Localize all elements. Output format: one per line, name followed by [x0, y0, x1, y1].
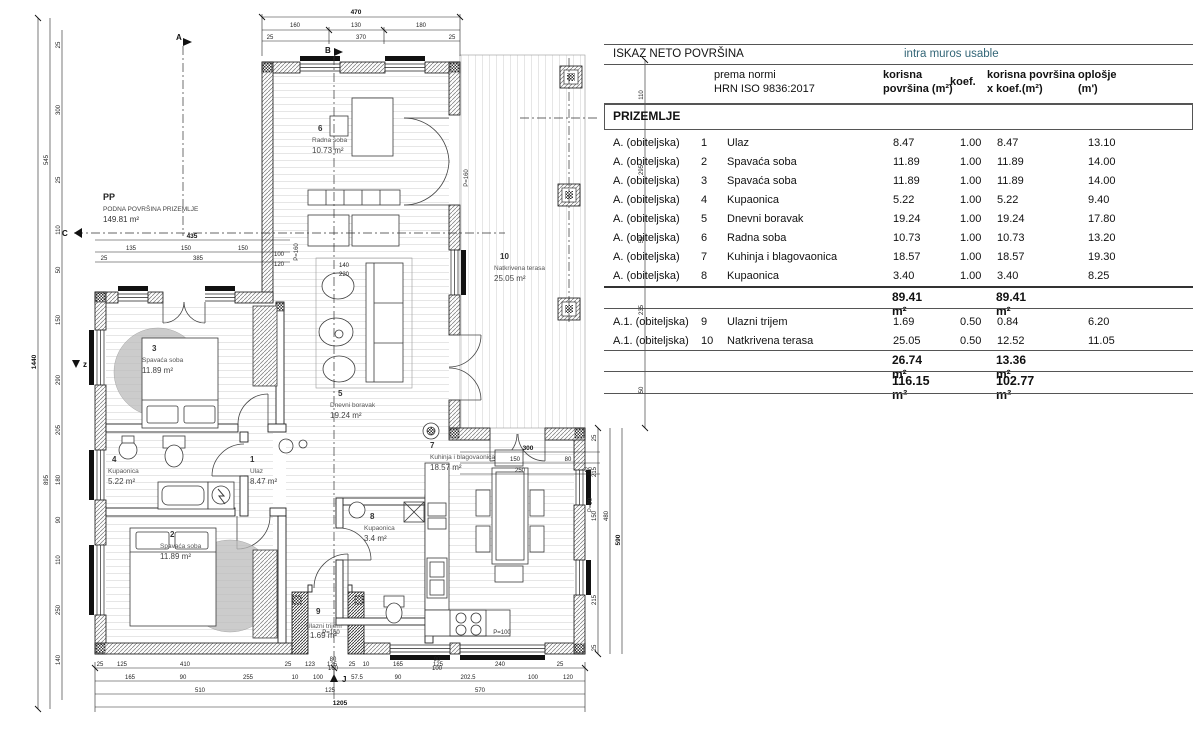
svg-text:125: 125 [325, 688, 336, 694]
table-subtitle: intra muros usable [904, 48, 999, 60]
svg-text:25: 25 [56, 176, 62, 183]
row-category: A. (obiteljska) [613, 270, 701, 282]
svg-text:120: 120 [274, 262, 285, 268]
svg-text:410: 410 [180, 662, 191, 668]
svg-text:150: 150 [56, 314, 62, 325]
row-oplosje: 8.25 [1088, 270, 1193, 282]
svg-text:205: 205 [56, 424, 62, 435]
table-row: A.1. (obiteljska)9Ulazni trijem1.690.500… [604, 312, 1193, 331]
row-number: 6 [701, 232, 727, 244]
room-6-area: 10.73 m² [312, 146, 344, 155]
row-area: 19.24 [893, 213, 960, 225]
row-name: Spavaća soba [727, 175, 893, 187]
floorplan-sheet: A B C z J PP PODNA POVRŠINA PRIZEMLJE 14… [0, 0, 1200, 734]
col-header-area-1: korisna [883, 69, 922, 81]
dim: 470 [351, 9, 362, 16]
sofa [366, 263, 403, 382]
chair [530, 490, 544, 516]
svg-text:100: 100 [432, 666, 443, 672]
norm-line-1: prema normi [714, 69, 776, 81]
row-name: Kupaonica [727, 270, 893, 282]
svg-text:240: 240 [495, 662, 506, 668]
row-areakoef: 8.47 [997, 137, 1088, 149]
row-number: 1 [701, 137, 727, 149]
table-row: A. (obiteljska)3Spavaća soba11.891.0011.… [604, 171, 1193, 190]
svg-text:290: 290 [56, 374, 62, 385]
row-area: 5.22 [893, 194, 960, 206]
row-number: 4 [701, 194, 727, 206]
room-2-number: 2 [170, 530, 175, 539]
row-category: A. (obiteljska) [613, 232, 701, 244]
room-10-name: Natkrivena terasa [494, 265, 545, 272]
axis-marker-z: z [83, 360, 87, 369]
row-oplosje: 13.10 [1088, 137, 1193, 149]
total-area: 116.15 m² [892, 374, 930, 402]
room-6-number: 6 [318, 124, 323, 133]
room-9-number: 9 [316, 607, 321, 616]
row-area: 25.05 [893, 335, 960, 347]
svg-text:123: 123 [305, 662, 316, 668]
table-row: A. (obiteljska)7Kuhinja i blagovaonica18… [604, 247, 1193, 266]
row-oplosje: 11.05 [1088, 335, 1193, 347]
row-number: 8 [701, 270, 727, 282]
wardrobe [253, 550, 277, 638]
row-name: Dnevni boravak [727, 213, 893, 225]
axis-marker-b: B [325, 46, 331, 55]
rule [604, 44, 1193, 45]
row-name: Kupaonica [727, 194, 893, 206]
section-header: PRIZEMLJE [604, 104, 1193, 130]
svg-text:57.5: 57.5 [351, 675, 363, 681]
chair [476, 490, 490, 516]
parapet-label: P=160 [464, 169, 470, 187]
row-areakoef: 10.73 [997, 232, 1088, 244]
row-number: 9 [701, 316, 727, 328]
rule [604, 308, 1193, 309]
row-oplosje: 13.20 [1088, 232, 1193, 244]
row-koef: 0.50 [960, 335, 997, 347]
room-3-number: 3 [152, 344, 157, 353]
table-row: A. (obiteljska)5Dnevni boravak19.241.001… [604, 209, 1193, 228]
svg-text:150: 150 [238, 246, 249, 252]
room-2-name: Spavaća soba [160, 543, 202, 550]
svg-text:25: 25 [97, 662, 104, 668]
parapet-label: P=90 [588, 497, 594, 512]
row-name: Spavaća soba [727, 156, 893, 168]
svg-text:385: 385 [193, 256, 204, 262]
table-row: A. (obiteljska)6Radna soba10.731.0010.73… [604, 228, 1193, 247]
svg-text:80: 80 [565, 457, 572, 463]
svg-text:165: 165 [125, 675, 136, 681]
row-name: Ulaz [727, 137, 893, 149]
room-10-number: 10 [500, 252, 509, 261]
svg-text:590: 590 [615, 534, 622, 545]
room-8-area: 3.4 m² [364, 534, 387, 543]
svg-text:25: 25 [349, 662, 356, 668]
room-6-name: Radna soba [312, 137, 347, 144]
svg-text:215: 215 [592, 466, 598, 477]
row-area: 8.47 [893, 137, 960, 149]
svg-text:25: 25 [449, 35, 456, 41]
row-koef: 1.00 [960, 270, 997, 282]
room-7-area: 18.57 m² [430, 463, 462, 472]
svg-text:125: 125 [117, 662, 128, 668]
row-koef: 0.50 [960, 316, 997, 328]
row-name: Radna soba [727, 232, 893, 244]
svg-text:255: 255 [243, 675, 254, 681]
axis-marker-j: J [342, 675, 346, 684]
svg-text:300: 300 [523, 445, 534, 452]
room-3-name: Spavaća soba [142, 357, 184, 364]
row-areakoef: 18.57 [997, 251, 1088, 263]
row-oplosje: 19.30 [1088, 251, 1193, 263]
room-5-name: Dnevni boravak [330, 402, 376, 409]
svg-text:50: 50 [56, 266, 62, 273]
row-category: A. (obiteljska) [613, 156, 701, 168]
washbasin [349, 502, 365, 518]
table-title: ISKAZ NETO POVRŠINA [613, 48, 744, 60]
room-1-name: Ulaz [250, 468, 263, 475]
row-areakoef: 11.89 [997, 175, 1088, 187]
svg-text:25: 25 [267, 35, 274, 41]
row-name: Kuhinja i blagovaonica [727, 251, 893, 263]
row-number: 5 [701, 213, 727, 225]
svg-text:25: 25 [557, 662, 564, 668]
table-row: A. (obiteljska)1Ulaz8.471.008.4713.10 [604, 133, 1193, 152]
svg-text:1440: 1440 [31, 354, 38, 369]
desk-chair [330, 116, 348, 136]
svg-text:10: 10 [292, 675, 299, 681]
axis-marker-c: C [62, 229, 68, 238]
svg-text:135: 135 [126, 246, 137, 252]
svg-text:25: 25 [101, 256, 108, 262]
svg-text:250: 250 [56, 604, 62, 615]
svg-text:545: 545 [44, 154, 50, 165]
row-oplosje: 17.80 [1088, 213, 1193, 225]
row-number: 2 [701, 156, 727, 168]
row-number: 7 [701, 251, 727, 263]
rule [604, 371, 1193, 372]
parapet-label: P=160 [322, 630, 340, 636]
rule [604, 286, 1193, 288]
wardrobe [253, 306, 277, 386]
svg-text:150: 150 [181, 246, 192, 252]
row-koef: 1.00 [960, 194, 997, 206]
row-number: 3 [701, 175, 727, 187]
svg-text:90: 90 [434, 657, 441, 663]
svg-text:160: 160 [328, 666, 339, 672]
col-header-oplosje-2: (m') [1078, 83, 1098, 95]
row-category: A.1. (obiteljska) [613, 316, 701, 328]
row-area: 1.69 [893, 316, 960, 328]
row-category: A.1. (obiteljska) [613, 335, 701, 347]
row-koef: 1.00 [960, 137, 997, 149]
pp-area: 149.81 m² [103, 215, 139, 224]
svg-text:10: 10 [363, 662, 370, 668]
svg-text:25: 25 [592, 434, 598, 441]
row-area: 3.40 [893, 270, 960, 282]
terrace-floor [460, 55, 585, 428]
row-koef: 1.00 [960, 251, 997, 263]
svg-text:25: 25 [285, 662, 292, 668]
desk [352, 98, 393, 156]
row-areakoef: 11.89 [997, 156, 1088, 168]
svg-text:110: 110 [56, 225, 62, 235]
col-header-oplosje-1: oplošje [1078, 69, 1117, 81]
row-name: Natkrivena terasa [727, 335, 893, 347]
axis-marker-a: A [176, 33, 182, 42]
svg-text:25: 25 [592, 644, 598, 651]
rule [604, 350, 1193, 351]
svg-text:100: 100 [528, 675, 539, 681]
svg-text:80: 80 [330, 657, 337, 663]
col-header-xkoef-2: x koef.(m²) [987, 83, 1043, 95]
row-oplosje: 14.00 [1088, 156, 1193, 168]
row-name: Ulazni trijem [727, 316, 893, 328]
svg-text:180: 180 [416, 23, 427, 29]
parapet-label: P=160 [294, 243, 300, 261]
row-category: A. (obiteljska) [613, 175, 701, 187]
room-3-area: 11.89 m² [142, 366, 173, 375]
row-koef: 1.00 [960, 175, 997, 187]
rule [604, 64, 1193, 65]
row-area: 18.57 [893, 251, 960, 263]
row-area: 11.89 [893, 156, 960, 168]
row-number: 10 [701, 335, 727, 347]
room-8-number: 8 [370, 512, 375, 521]
svg-text:435: 435 [187, 233, 198, 240]
row-koef: 1.00 [960, 232, 997, 244]
table-row: A. (obiteljska)2Spavaća soba11.891.0011.… [604, 152, 1193, 171]
room-5-number: 5 [338, 389, 343, 398]
svg-text:480: 480 [604, 510, 610, 521]
row-category: A. (obiteljska) [613, 251, 701, 263]
col-header-koef: koef. [950, 76, 976, 88]
washbasin [119, 441, 137, 459]
row-areakoef: 5.22 [997, 194, 1088, 206]
svg-text:100: 100 [274, 252, 285, 258]
svg-text:895: 895 [44, 474, 50, 485]
sideboard [308, 190, 400, 205]
table-row: A.1. (obiteljska)10Natkrivena terasa25.0… [604, 331, 1193, 350]
svg-text:160: 160 [290, 23, 301, 29]
svg-text:140: 140 [339, 263, 350, 269]
room-7-name: Kuhinja i blagovaonica [430, 454, 495, 461]
svg-text:300: 300 [56, 104, 62, 115]
room-7-number: 7 [430, 441, 435, 450]
row-category: A. (obiteljska) [613, 194, 701, 206]
row-area: 11.89 [893, 175, 960, 187]
pp-text: PODNA POVRŠINA PRIZEMLJE [103, 204, 199, 213]
rule [604, 393, 1193, 394]
room-2-area: 11.89 m² [160, 552, 191, 561]
row-areakoef: 0.84 [997, 316, 1088, 328]
area-table: ISKAZ NETO POVRŠINA intra muros usable p… [604, 0, 1193, 420]
chair [530, 526, 544, 552]
svg-text:150: 150 [510, 457, 521, 463]
room-1-number: 1 [250, 455, 255, 464]
svg-text:90: 90 [56, 516, 62, 523]
room-4-name: Kupaonica [108, 468, 139, 475]
svg-text:1205: 1205 [333, 700, 348, 707]
table-row: A. (obiteljska)8Kupaonica3.401.003.408.2… [604, 266, 1193, 285]
svg-text:25: 25 [56, 41, 62, 48]
svg-text:250: 250 [515, 468, 526, 474]
svg-text:570: 570 [475, 688, 486, 694]
room-4-area: 5.22 m² [108, 477, 135, 486]
row-oplosje: 14.00 [1088, 175, 1193, 187]
svg-text:130: 130 [351, 23, 362, 29]
armchair [323, 356, 355, 382]
row-areakoef: 3.40 [997, 270, 1088, 282]
svg-text:90: 90 [395, 675, 402, 681]
row-areakoef: 12.52 [997, 335, 1088, 347]
svg-text:90: 90 [180, 675, 187, 681]
room-4-number: 4 [112, 455, 117, 464]
svg-text:165: 165 [393, 662, 404, 668]
room-10-area: 25.05 m² [494, 274, 526, 283]
room-5-area: 19.24 m² [330, 411, 362, 420]
row-koef: 1.00 [960, 156, 997, 168]
svg-text:370: 370 [356, 35, 367, 41]
col-header-xkoef-1: korisna površina [987, 69, 1075, 81]
dining-table [492, 468, 528, 564]
room-8-name: Kupaonica [364, 525, 395, 532]
col-header-area-2: površina (m²) [883, 83, 953, 95]
pp-label: PP PODNA POVRŠINA PRIZEMLJE 149.81 m² [103, 192, 199, 224]
floor-plan-drawing: A B C z J PP PODNA POVRŠINA PRIZEMLJE 14… [0, 0, 655, 734]
svg-text:110: 110 [56, 555, 62, 565]
svg-text:120: 120 [563, 675, 574, 681]
svg-text:25: 25 [585, 468, 592, 474]
row-area: 10.73 [893, 232, 960, 244]
chair [495, 566, 523, 582]
norm-line-2: HRN ISO 9836:2017 [714, 83, 815, 95]
pp-code: PP [103, 192, 115, 202]
svg-text:220: 220 [339, 272, 350, 278]
svg-text:100: 100 [313, 675, 324, 681]
row-oplosje: 9.40 [1088, 194, 1193, 206]
row-koef: 1.00 [960, 213, 997, 225]
parapet-label: P=100 [493, 630, 511, 636]
chair [476, 526, 490, 552]
table-row: A. (obiteljska)4Kupaonica5.221.005.229.4… [604, 190, 1193, 209]
svg-text:215: 215 [592, 594, 598, 605]
row-category: A. (obiteljska) [613, 213, 701, 225]
room-1-area: 8.47 m² [250, 477, 277, 486]
svg-text:140: 140 [56, 654, 62, 665]
svg-text:510: 510 [195, 688, 206, 694]
row-oplosje: 6.20 [1088, 316, 1193, 328]
row-category: A. (obiteljska) [613, 137, 701, 149]
total-areakoef: 102.77 m² [996, 374, 1034, 402]
row-areakoef: 19.24 [997, 213, 1088, 225]
svg-text:202.5: 202.5 [460, 675, 476, 681]
svg-text:180: 180 [56, 474, 62, 485]
section-title: PRIZEMLJE [613, 109, 680, 123]
room-9-name: Ulazni trijem [306, 623, 342, 630]
